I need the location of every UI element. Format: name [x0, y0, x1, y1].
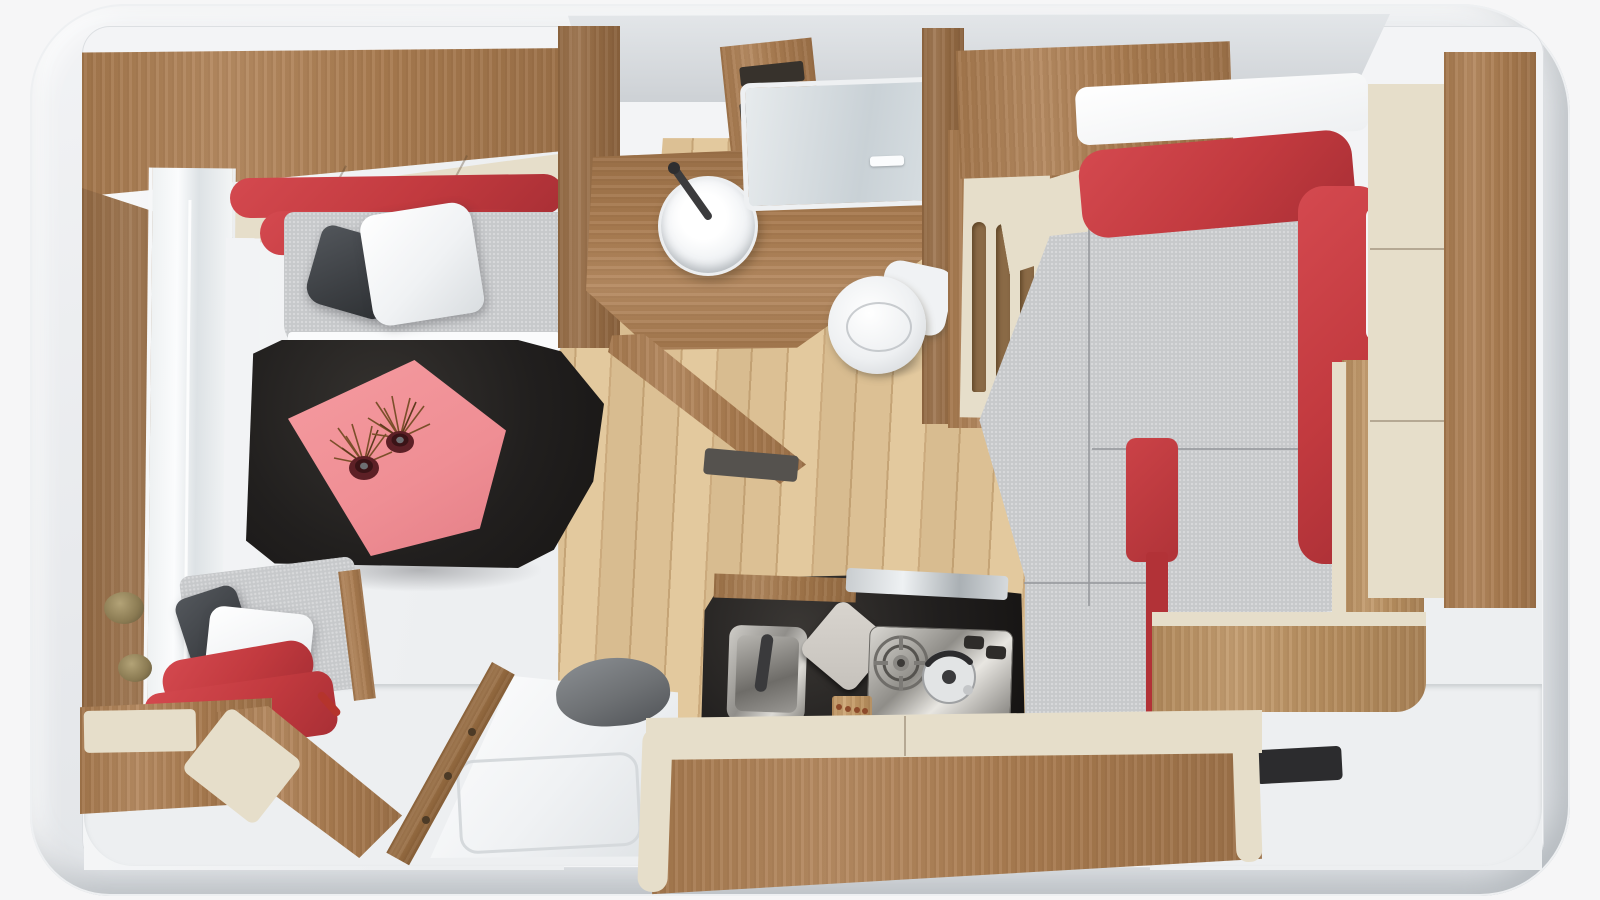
kettle [916, 646, 982, 708]
spice-jar [862, 708, 868, 714]
worktop-wood-rim [714, 574, 857, 603]
mattress-seam [1024, 582, 1160, 584]
spice-jar [836, 704, 842, 710]
hinge-rivet [422, 816, 430, 824]
door-hinge-knob [118, 654, 152, 682]
bed-platform-trim-horizontal [1152, 622, 1426, 712]
caravan-floorplan-render [0, 0, 1600, 900]
kitchen-bench-top-cream [646, 710, 1262, 760]
dark-floor-mat [1255, 746, 1343, 784]
pillow-white [358, 200, 486, 328]
bench-end-cap-cream [1231, 712, 1262, 863]
basin-faucet [664, 162, 724, 228]
hob-control-knob [964, 635, 985, 649]
wardrobe-door-seam [1370, 420, 1444, 422]
entry-door-window-frame [456, 751, 643, 854]
hinge-rivet [468, 728, 476, 736]
bench-end-cap-cream [637, 728, 673, 893]
wardrobe-doors-cream [1368, 84, 1446, 598]
dried-plant-pot [358, 392, 442, 472]
bench-top-seam [904, 716, 906, 756]
hinge-rivet [444, 772, 452, 780]
ladder-slot [972, 222, 986, 392]
mattress-seam [1088, 210, 1090, 606]
step-bench-pad-cream [84, 709, 197, 753]
bed-corner-red-bolster [1126, 438, 1178, 562]
spice-jar [854, 707, 860, 713]
wardrobe-wood-side [1444, 52, 1536, 608]
hob-control-knob [986, 645, 1007, 659]
toilet-seat-seam [846, 302, 912, 352]
spice-jar [845, 706, 851, 712]
wardrobe-door-seam [1370, 248, 1444, 250]
window-latch [870, 155, 904, 166]
bed-platform-cream-edge [1152, 612, 1426, 626]
door-hinge-knob [104, 592, 144, 624]
